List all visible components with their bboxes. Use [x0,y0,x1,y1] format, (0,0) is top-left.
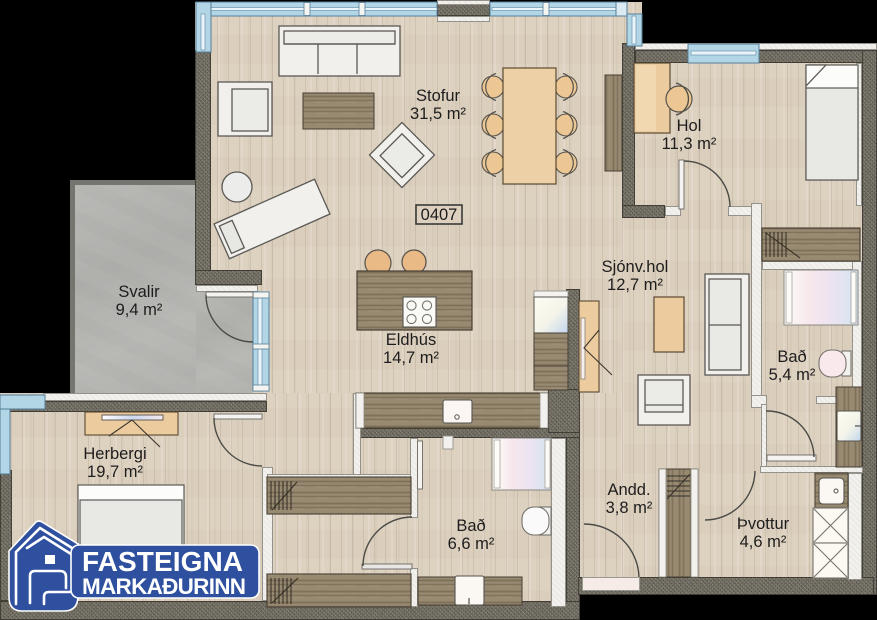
svg-text:FASTEIGNA: FASTEIGNA [82,546,243,577]
svg-text:0407: 0407 [421,206,458,224]
svg-text:MARKAÐURINN: MARKAÐURINN [82,574,246,599]
